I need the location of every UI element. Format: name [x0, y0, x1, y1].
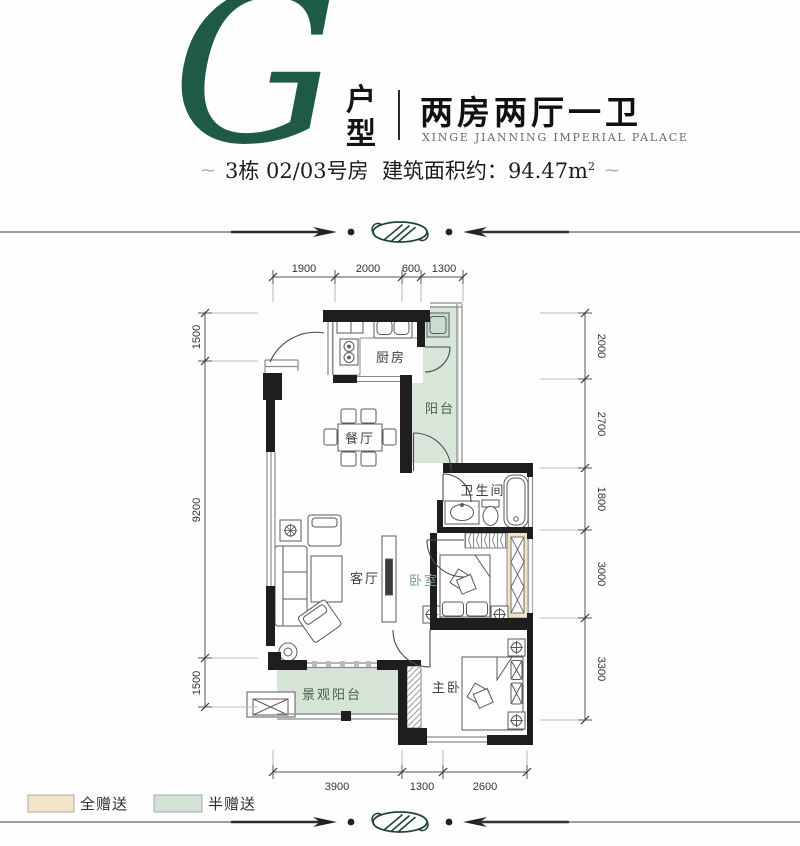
plant [279, 643, 297, 661]
entry-door-arc [270, 332, 324, 362]
dim-top-1: 1900 [292, 263, 316, 275]
armchair-top [308, 515, 341, 546]
legend-label-half-gift: 半赠送 [208, 796, 256, 813]
toilet [482, 500, 499, 526]
shaft-hatch [407, 666, 421, 728]
dim-bottom-1: 3900 [325, 781, 349, 793]
room-label-kitchen: 厨房 [376, 350, 406, 365]
wardrobe-hatch [465, 533, 507, 548]
bedroom-bed [440, 555, 490, 617]
room-label-master: 主卧 [432, 680, 462, 695]
dim-top-4: 1300 [432, 263, 456, 275]
column-symbol [508, 639, 525, 656]
room-label-view-balcony: 景观阳台 [302, 687, 362, 702]
floorplan-page: G 户 型 两房两厅一卫 XINGE JIANNING IMPERIAL PAL… [0, 0, 800, 846]
dim-left-2: 9200 [191, 498, 203, 522]
room-label-living: 客厅 [350, 571, 380, 586]
dim-right-5: 3300 [595, 657, 607, 681]
dim-right-1: 2000 [595, 334, 607, 358]
legend-swatch-full-gift [28, 795, 74, 812]
ornamental-divider-bottom [0, 812, 800, 832]
room-label-dining: 餐厅 [345, 431, 375, 446]
bay-window-x-panel [511, 537, 524, 613]
ac-platform [247, 692, 295, 717]
dim-left-3: 1500 [191, 671, 203, 695]
floorplan-canvas: 厨房 阳台 餐厅 客厅 卫生间 卧室 主卧 景观阳台 [0, 0, 800, 846]
dim-right-2: 2700 [595, 412, 607, 436]
bathtub [504, 475, 528, 528]
kitchen-stove [340, 339, 358, 365]
legend-swatch-half-gift [154, 795, 202, 812]
dim-top-2: 2000 [356, 263, 380, 275]
side-table-flower [280, 520, 301, 541]
railing-post [341, 711, 351, 721]
dim-left-1: 1500 [191, 325, 203, 349]
column-symbol [508, 712, 525, 729]
washing-machine [427, 313, 449, 337]
legend: 全赠送 半赠送 [28, 795, 256, 813]
dim-top-3: 600 [402, 263, 420, 275]
room-label-balcony: 阳台 [425, 401, 455, 416]
room-label-bedroom: 卧室 [409, 573, 439, 588]
dim-right-3: 1800 [595, 487, 607, 511]
dim-bottom-3: 2600 [473, 781, 497, 793]
tv-console [382, 536, 396, 622]
coffee-table [311, 556, 342, 602]
dim-right-4: 3000 [595, 562, 607, 586]
ornamental-divider-top [0, 222, 800, 242]
room-label-bathroom: 卫生间 [460, 483, 505, 498]
legend-label-full-gift: 全赠送 [80, 795, 128, 813]
bathroom-sink [445, 501, 479, 524]
dim-bottom-2: 1300 [410, 781, 434, 793]
